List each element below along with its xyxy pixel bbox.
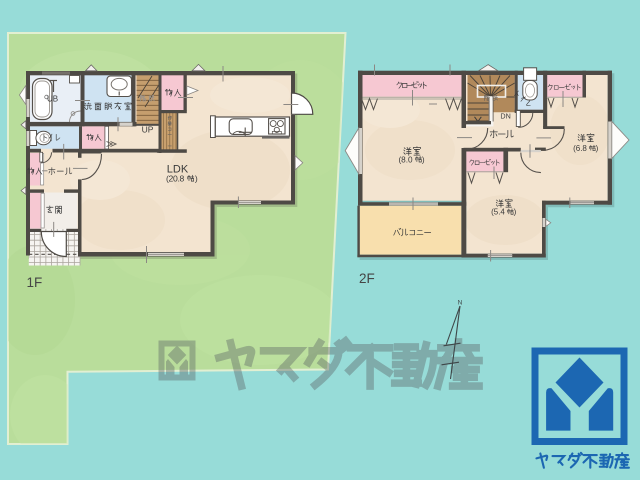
svg-text:(6.8: (6.8 bbox=[573, 144, 587, 153]
svg-text:): ) bbox=[195, 174, 198, 184]
svg-text:2F: 2F bbox=[359, 271, 375, 286]
svg-text:1F: 1F bbox=[27, 275, 43, 290]
svg-text:N: N bbox=[458, 300, 463, 307]
svg-text:UB: UB bbox=[47, 95, 58, 104]
svg-text:(20.8: (20.8 bbox=[166, 174, 185, 184]
svg-text:(8.0: (8.0 bbox=[398, 155, 413, 164]
svg-text:): ) bbox=[596, 144, 599, 153]
svg-text:): ) bbox=[422, 155, 425, 164]
svg-text:): ) bbox=[514, 208, 517, 217]
svg-text:(5.4: (5.4 bbox=[491, 208, 505, 217]
svg-text:DN: DN bbox=[500, 111, 510, 120]
svg-text:UP: UP bbox=[142, 125, 154, 135]
